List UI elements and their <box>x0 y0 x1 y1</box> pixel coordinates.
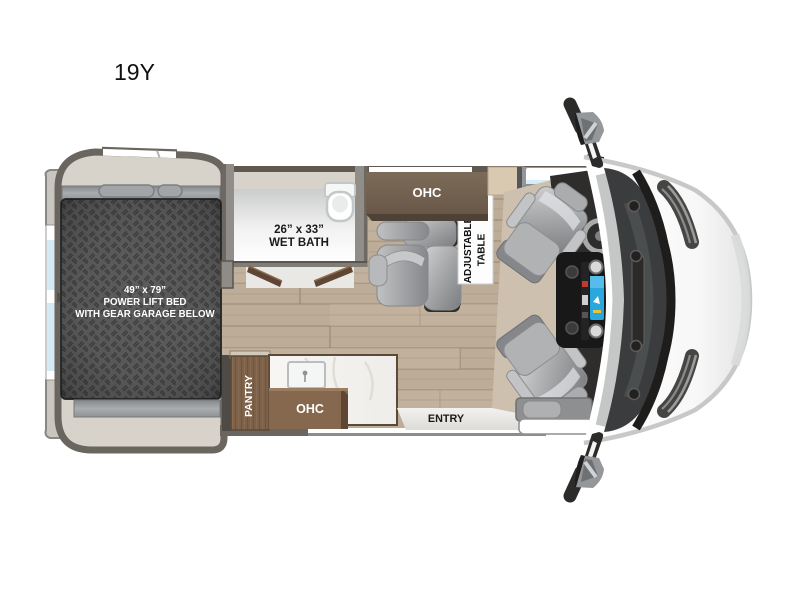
svg-text:TABLE: TABLE <box>477 233 488 266</box>
svg-text:WET BATH: WET BATH <box>269 237 329 249</box>
svg-text:OHC: OHC <box>296 402 324 416</box>
svg-text:PANTRY: PANTRY <box>243 375 255 417</box>
svg-text:19Y: 19Y <box>114 59 155 85</box>
svg-text:OHC: OHC <box>413 185 443 200</box>
svg-text:WITH GEAR GARAGE BELOW: WITH GEAR GARAGE BELOW <box>75 309 215 320</box>
svg-text:POWER LIFT BED: POWER LIFT BED <box>104 297 187 308</box>
svg-text:ENTRY: ENTRY <box>428 413 465 425</box>
svg-text:ADJUSTABLE: ADJUSTABLE <box>463 216 474 283</box>
svg-text:26” x 33”: 26” x 33” <box>274 224 324 236</box>
svg-text:49” x 79”: 49” x 79” <box>124 285 166 296</box>
